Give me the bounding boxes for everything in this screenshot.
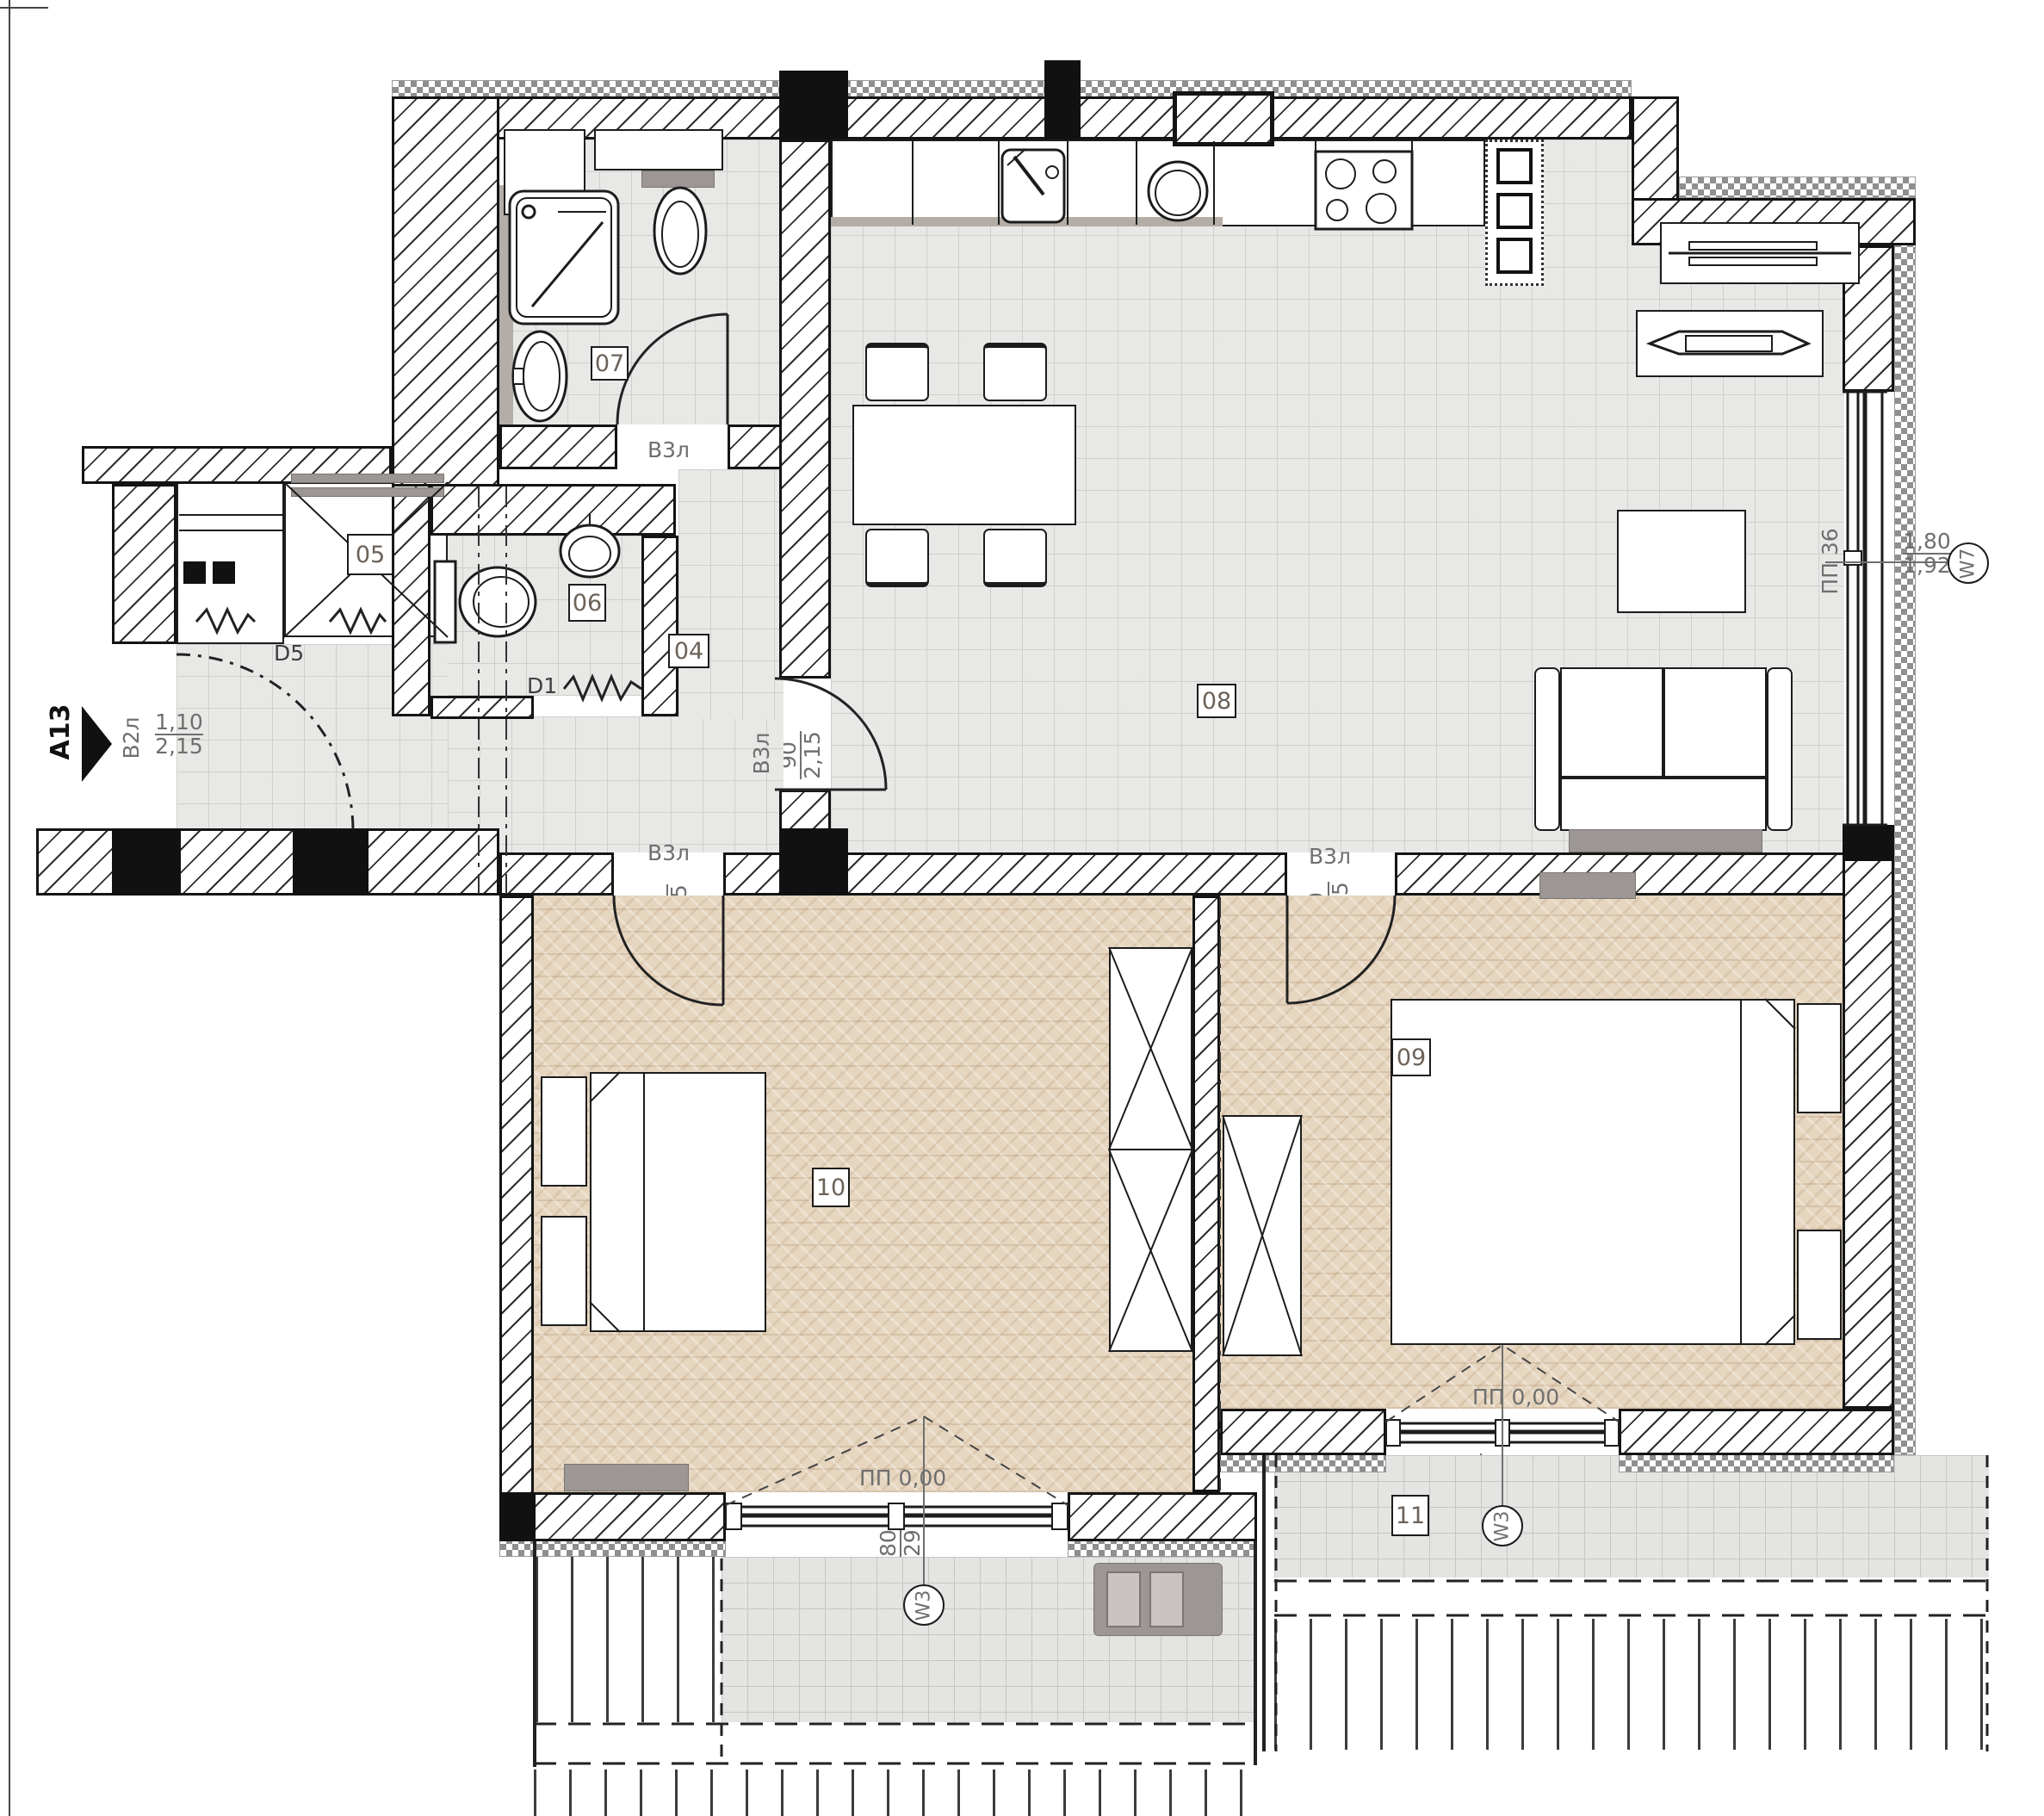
d5-threshold-zigzag-right [330, 610, 386, 632]
shower-icon [510, 191, 618, 324]
floor-plan-page: { "title": "Apartment A13 floor plan", "… [0, 0, 2044, 1816]
bedroom1-door-code: В3л [647, 842, 696, 866]
wc-sink-icon [561, 513, 619, 577]
living-window [1843, 392, 1887, 825]
room-label-closet: 05 [347, 534, 393, 575]
entrance-door-code: В2л [119, 708, 145, 768]
bedroom2-window-sill: ПП 0,00 [1472, 1386, 1576, 1410]
bathroom-door-swing [617, 314, 728, 425]
room-label-bathroom: 07 [591, 346, 629, 381]
bed-fold-marks [590, 999, 1795, 1345]
living-door-code: В3л [749, 725, 775, 782]
living-window-code: W7 [1948, 542, 1989, 584]
d1-threshold-zigzag [564, 677, 641, 699]
kitchen-sink-icon [1002, 150, 1064, 222]
bedroom1-door-swing [614, 896, 723, 1005]
bedroom1-window-sill: ПП 0,00 [859, 1467, 963, 1491]
plan-linework [0, 0, 2044, 1816]
bedroom1-window-code: W3 [903, 1584, 945, 1626]
closet-shelf-lines [179, 515, 284, 530]
stove-icon [1316, 152, 1412, 229]
room-label-hall: 04 [668, 634, 709, 668]
living-window-sill: ПП 36 [1818, 529, 1843, 594]
room-label-bedroom1: 10 [812, 1168, 850, 1207]
bedroom1-window-opening-dashes [726, 1416, 1068, 1505]
living-door-swing [775, 679, 886, 790]
entrance-marker: A13 [45, 691, 76, 773]
bedroom1-window [726, 1503, 1068, 1529]
axis-lines [479, 487, 1220, 1491]
room-label-living: 08 [1197, 684, 1236, 718]
entrance-door-size: 1,102,15 [151, 711, 207, 759]
d1-door-code: D1 [527, 675, 565, 699]
wc-toilet-icon [435, 561, 536, 642]
kitchen-round-basin-icon [1149, 162, 1207, 220]
room-label-wc: 06 [568, 584, 606, 622]
bedroom2-window-code: W3 [1482, 1505, 1523, 1546]
room-label-terrace: 11 [1391, 1495, 1429, 1536]
bathroom-door-code: В3л [647, 439, 696, 463]
bedroom2-door-swing [1287, 896, 1395, 1003]
bedroom2-door-code: В3л [1309, 846, 1357, 870]
bath-sink-icon [513, 332, 567, 421]
balcony-left-outline [534, 1541, 1257, 1767]
wall-shelf-line [1669, 242, 1851, 265]
entrance-arrow-icon [82, 706, 112, 782]
bath-toilet-icon [654, 188, 706, 274]
room-label-bedroom2: 09 [1391, 1038, 1431, 1076]
d5-door-code: D5 [274, 642, 315, 668]
d5-threshold-zigzag-left [196, 610, 255, 632]
tv-icon [1650, 332, 1808, 354]
living-window-size: 1,801,92 [1899, 530, 1954, 578]
terrace-11-outline [1264, 1455, 1989, 1751]
